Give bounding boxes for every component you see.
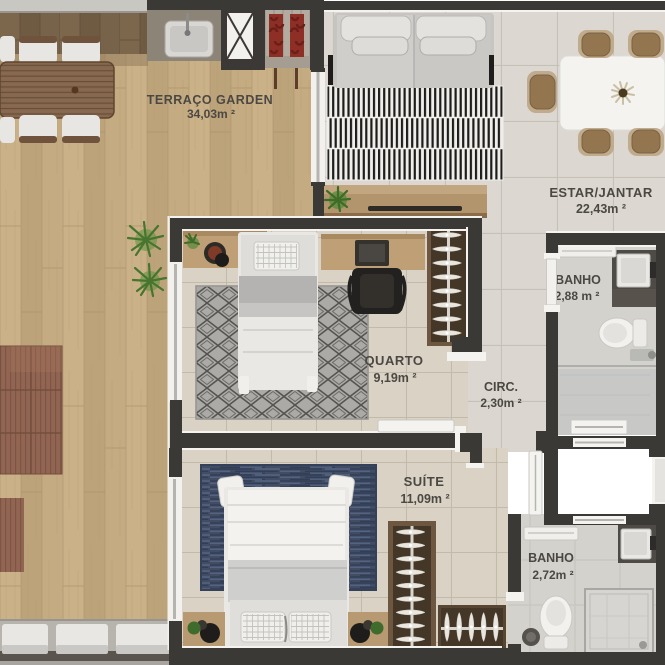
svg-text:ESTAR/JANTAR: ESTAR/JANTAR [549, 185, 652, 200]
svg-text:CIRC.: CIRC. [484, 380, 518, 394]
svg-text:QUARTO: QUARTO [364, 353, 423, 368]
svg-text:22,43m ²: 22,43m ² [576, 202, 626, 216]
svg-text:BANHO: BANHO [528, 551, 574, 565]
svg-text:2,30m ²: 2,30m ² [480, 396, 521, 410]
svg-text:SUÍTE: SUÍTE [404, 474, 445, 489]
svg-text:TERRAÇO GARDEN: TERRAÇO GARDEN [147, 93, 273, 107]
svg-text:9,19m ²: 9,19m ² [373, 371, 416, 385]
svg-text:34,03m ²: 34,03m ² [187, 107, 235, 121]
svg-text:2,88 m ²: 2,88 m ² [555, 289, 600, 303]
svg-text:BANHO: BANHO [555, 273, 601, 287]
svg-text:11,09m ²: 11,09m ² [400, 492, 449, 506]
svg-text:2,72m ²: 2,72m ² [532, 568, 573, 582]
